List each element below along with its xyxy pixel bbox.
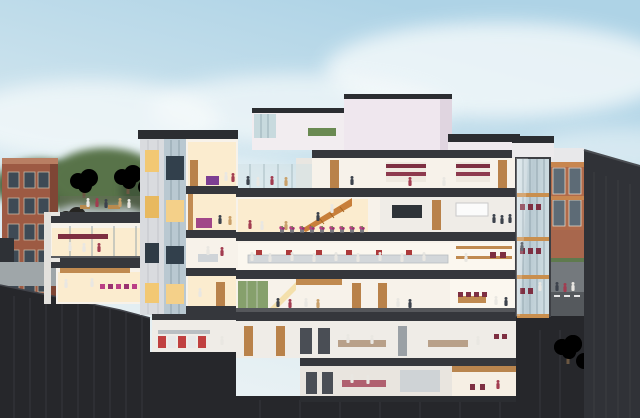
person: [290, 252, 293, 261]
floor-4-atrium: [236, 197, 516, 232]
wing-pilaster: [44, 212, 51, 304]
architectural-section-rendering: [0, 0, 640, 418]
person: [408, 299, 411, 308]
slab-1: [300, 358, 516, 366]
person: [422, 252, 425, 261]
person: [464, 253, 467, 262]
person: [260, 221, 263, 230]
wood-door: [352, 283, 361, 311]
person: [346, 334, 349, 343]
person: [256, 177, 259, 186]
person: [288, 299, 291, 308]
person: [86, 198, 89, 207]
person: [400, 253, 403, 262]
penthouse-glass: [254, 114, 276, 138]
floor-2-lobby: [236, 279, 516, 312]
person: [312, 253, 315, 262]
person: [350, 176, 353, 185]
street-scene: [550, 230, 584, 316]
person: [220, 247, 223, 256]
lab-table: [338, 340, 386, 347]
person: [370, 335, 373, 344]
wood-door: [378, 283, 387, 311]
tower-parapet: [138, 130, 238, 139]
person: [476, 336, 479, 345]
person: [198, 288, 201, 297]
person: [127, 199, 130, 208]
wood-door: [330, 160, 339, 188]
right-brick-building: [550, 148, 584, 230]
person: [334, 252, 337, 261]
person: [316, 299, 319, 308]
person: [356, 253, 359, 262]
wood-ceiling-room: [452, 366, 516, 396]
person: [231, 173, 234, 182]
person: [538, 282, 541, 291]
person: [248, 220, 251, 229]
person: [228, 216, 231, 225]
person: [366, 375, 369, 384]
lab-stations: [158, 330, 210, 348]
person: [508, 214, 511, 223]
wood-door: [244, 326, 253, 356]
person: [504, 297, 507, 306]
basement-2: [300, 366, 516, 396]
sidewalk: [550, 262, 584, 292]
person: [492, 214, 495, 223]
person: [563, 283, 566, 292]
person: [224, 172, 227, 181]
panel-wall: [400, 370, 440, 392]
right-parapet: [448, 134, 520, 142]
main-block: [236, 94, 520, 402]
wood-ceiling: [296, 279, 342, 285]
person: [68, 242, 71, 251]
basement-1: [236, 321, 516, 358]
person: [270, 176, 273, 185]
bookshelf: [456, 162, 490, 182]
dark-fence: [0, 238, 14, 264]
bookshelf: [386, 162, 426, 182]
red-lab: [152, 314, 236, 352]
slab-2: [236, 312, 516, 321]
person: [330, 204, 333, 213]
person: [442, 177, 445, 186]
slab-5: [236, 188, 516, 197]
person: [494, 296, 497, 305]
person: [90, 278, 93, 287]
person: [218, 215, 221, 224]
wood-door: [276, 326, 285, 356]
person: [496, 380, 499, 389]
person: [268, 253, 271, 262]
person: [350, 374, 353, 383]
person: [408, 177, 411, 186]
person: [304, 298, 307, 307]
whiteboard: [456, 203, 488, 216]
roof-garden: [308, 128, 336, 136]
person: [246, 176, 249, 185]
tower-floors: [186, 142, 238, 336]
planter-row: [279, 226, 364, 233]
person: [555, 282, 558, 291]
person: [82, 243, 85, 252]
person: [206, 246, 209, 255]
person: [378, 252, 381, 261]
bar-shelf: [58, 234, 108, 239]
person: [104, 199, 107, 208]
person: [571, 282, 574, 291]
lobby-glass-green: [238, 281, 268, 310]
person: [64, 279, 67, 288]
person: [500, 215, 503, 224]
person: [316, 212, 319, 221]
person: [284, 221, 287, 230]
glass-stair-tower: [512, 136, 554, 318]
person: [276, 298, 279, 307]
person: [95, 198, 98, 207]
person: [250, 252, 253, 261]
wood-ceiling: [60, 268, 130, 273]
media-screen: [392, 205, 422, 218]
person: [97, 243, 100, 252]
person: [118, 198, 121, 207]
slab-4: [236, 232, 516, 241]
person: [284, 177, 287, 186]
dark-side-wall: [584, 150, 640, 418]
tower: [138, 130, 238, 352]
floor-3-lab: [236, 241, 516, 270]
pink-table: [342, 380, 386, 387]
person: [396, 298, 399, 307]
upper-band: [312, 150, 516, 158]
slab-3: [236, 270, 516, 279]
white-parapet: [550, 148, 584, 162]
person: [220, 336, 223, 345]
